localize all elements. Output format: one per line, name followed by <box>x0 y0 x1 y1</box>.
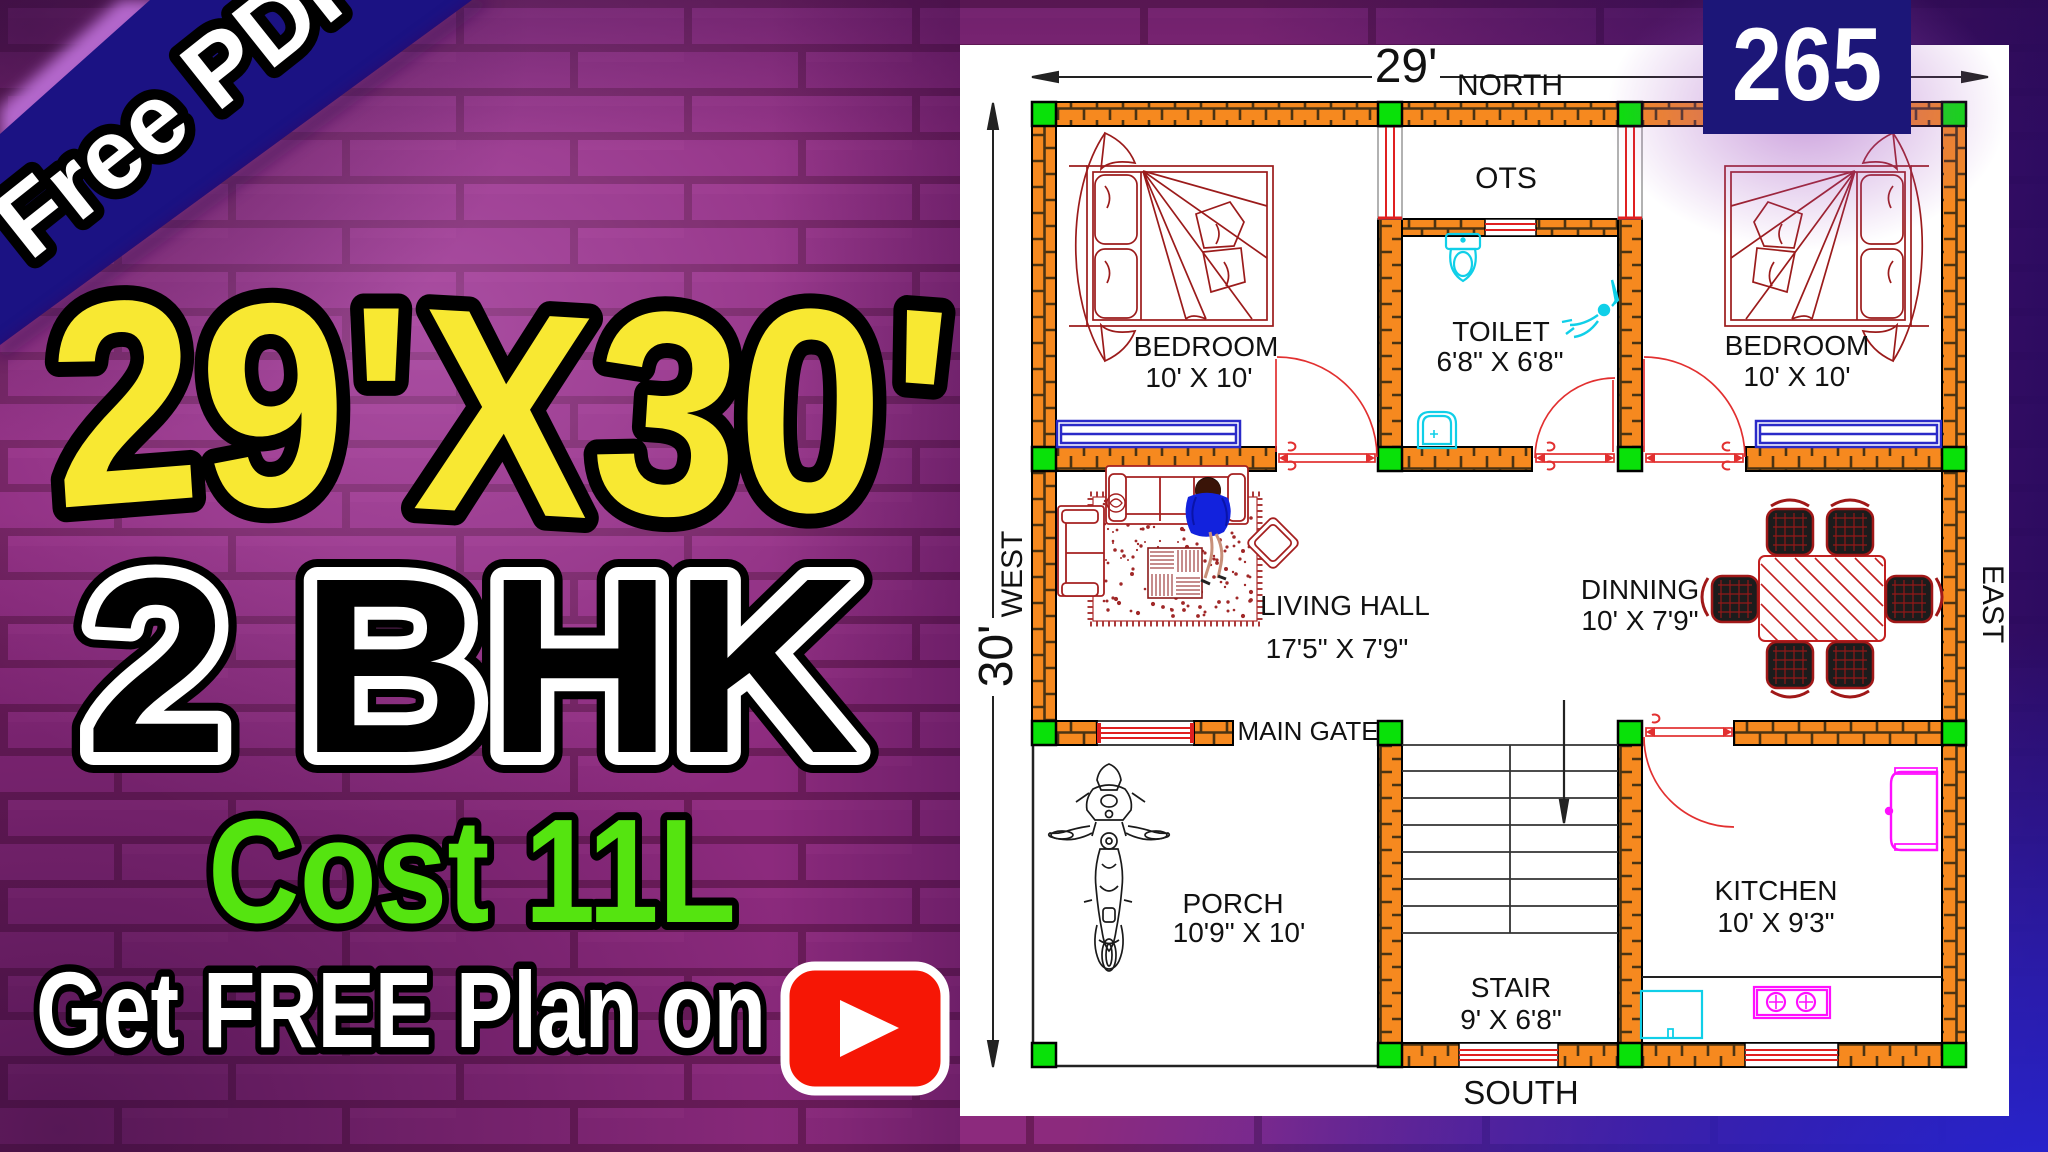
svg-text:PORCH: PORCH <box>1182 888 1283 919</box>
svg-text:6'8" X 6'8": 6'8" X 6'8" <box>1436 346 1563 377</box>
svg-text:MAIN GATE: MAIN GATE <box>1237 716 1378 746</box>
svg-text:2 BHK: 2 BHK <box>85 526 860 805</box>
svg-text:10' X 10': 10' X 10' <box>1743 361 1850 392</box>
svg-text:STAIR: STAIR <box>1471 972 1551 1003</box>
svg-text:265: 265 <box>1732 7 1882 123</box>
svg-text:WEST: WEST <box>996 531 1029 618</box>
svg-text:NORTH: NORTH <box>1457 69 1563 102</box>
svg-text:TOILET: TOILET <box>1452 316 1550 347</box>
svg-text:OTS: OTS <box>1475 162 1537 195</box>
svg-text:17'5" X 7'9": 17'5" X 7'9" <box>1266 633 1409 664</box>
svg-text:30': 30' <box>970 625 1023 688</box>
svg-text:EAST: EAST <box>1976 565 2009 643</box>
svg-text:DINNING: DINNING <box>1581 574 1699 605</box>
svg-text:BEDROOM: BEDROOM <box>1725 330 1870 361</box>
svg-text:10' X 10': 10' X 10' <box>1145 362 1252 393</box>
svg-text:Cost 11L: Cost 11L <box>208 789 736 954</box>
svg-text:10' X 7'9": 10' X 7'9" <box>1581 605 1698 636</box>
svg-text:LIVING HALL: LIVING HALL <box>1260 590 1430 621</box>
svg-text:Get FREE Plan on: Get FREE Plan on <box>36 949 766 1070</box>
svg-text:10' X 9'3": 10' X 9'3" <box>1717 907 1834 938</box>
svg-text:SOUTH: SOUTH <box>1463 1074 1579 1111</box>
svg-text:BEDROOM: BEDROOM <box>1134 331 1279 362</box>
svg-text:29': 29' <box>1375 40 1438 93</box>
svg-text:10'9" X 10': 10'9" X 10' <box>1173 917 1306 948</box>
svg-text:9' X 6'8": 9' X 6'8" <box>1460 1004 1562 1035</box>
svg-text:KITCHEN: KITCHEN <box>1715 875 1838 906</box>
